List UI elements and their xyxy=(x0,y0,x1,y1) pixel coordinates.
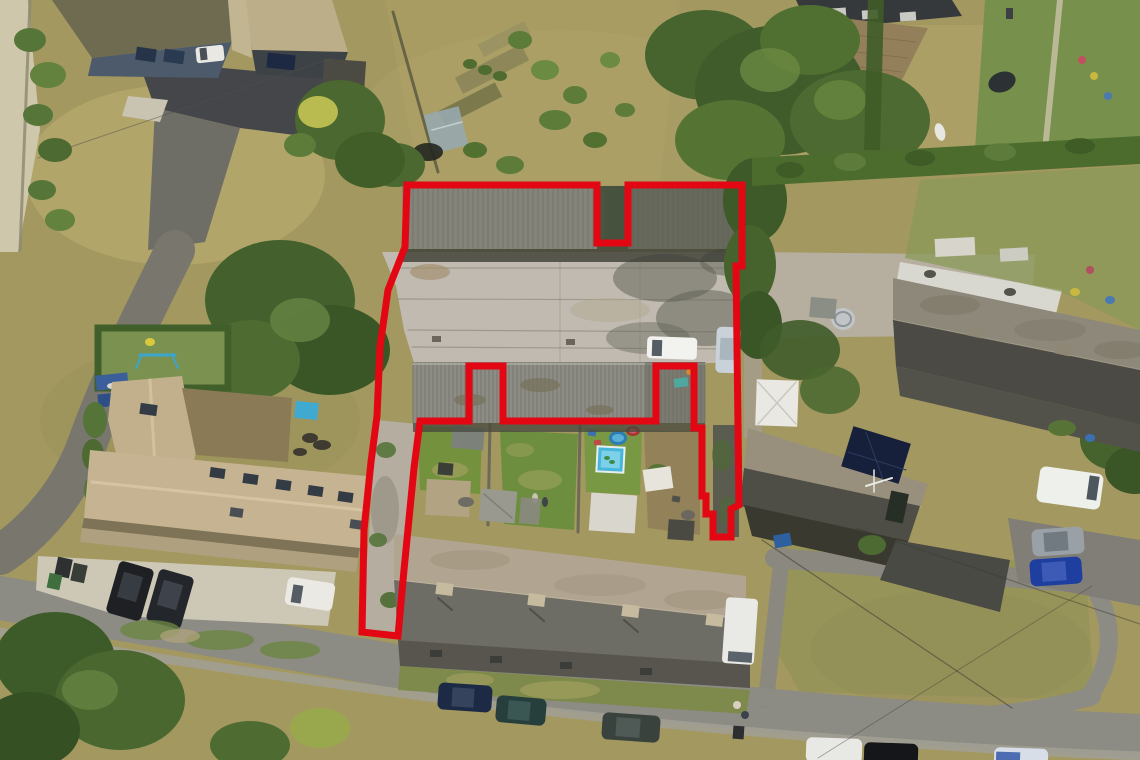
terrace-window-2 xyxy=(490,656,502,663)
yard-tan-stain xyxy=(570,298,650,322)
road-car-navy-glass xyxy=(451,687,474,707)
south-barn-moss-3 xyxy=(586,405,614,415)
allotment-bush-1 xyxy=(508,31,532,49)
topright-flower-3 xyxy=(1104,92,1112,100)
person-2 xyxy=(542,497,548,507)
topleft-house2-solar-panel xyxy=(266,53,295,71)
allotment-bush-7 xyxy=(615,103,635,117)
topright-bench xyxy=(1006,8,1013,19)
topleft-house2-roof-upper xyxy=(246,0,348,52)
pool-print-1 xyxy=(604,456,610,460)
blue-car-right-glass xyxy=(1041,561,1066,582)
planting-strip-3 xyxy=(260,641,320,659)
garden-center-patch-1 xyxy=(518,470,562,490)
garden-center-patch-2 xyxy=(506,443,534,457)
left-building-skylight-3 xyxy=(275,479,291,491)
road-car-green-glass xyxy=(615,717,640,738)
garden-left-item xyxy=(458,497,474,507)
yard-drain-2 xyxy=(566,339,575,345)
south-barn-moss-2 xyxy=(520,378,560,392)
yard-white-car-windshield xyxy=(652,340,663,356)
road-car-black-br xyxy=(864,742,919,760)
strip-bush-2 xyxy=(369,533,387,547)
left-building-skylight-w xyxy=(139,403,157,416)
terrace-roof-mottle-1 xyxy=(430,550,510,570)
tree-highlight-2 xyxy=(814,80,866,120)
right-row-roof-mottle-1 xyxy=(920,295,980,315)
ground-mottle-3 xyxy=(810,590,1090,710)
pedestrian-1 xyxy=(733,701,741,709)
strip-bush-1 xyxy=(376,442,396,458)
topright-flower-1 xyxy=(1078,56,1086,64)
lane-bush-2 xyxy=(30,62,66,88)
allotment-bush-2 xyxy=(531,60,559,80)
bush-yellow-topleft xyxy=(298,96,338,128)
road-car-teal-glass xyxy=(507,700,531,721)
bush-yellow-bottom xyxy=(290,708,350,748)
courtyard-item-3 xyxy=(293,448,307,456)
outbuilding-white xyxy=(589,492,638,533)
white-shed-behind-2 xyxy=(1000,247,1029,261)
allotment-bush-6 xyxy=(583,132,607,148)
lane-bush-3 xyxy=(23,104,53,126)
tree-highlight-1 xyxy=(740,48,800,92)
pool-round-water xyxy=(612,434,624,442)
garden-left-shed2 xyxy=(438,462,454,475)
rt-extension-item-2 xyxy=(1004,288,1016,296)
terrace-chimney-4 xyxy=(705,613,723,627)
allotment-bush-5 xyxy=(539,110,571,130)
lane-bush-5 xyxy=(28,180,56,200)
tarp-white xyxy=(643,466,674,492)
right-yards-blue-item xyxy=(1085,434,1095,442)
terrace-window-4 xyxy=(640,668,652,675)
terrace-window-1 xyxy=(430,650,442,657)
hedge-dapple-4 xyxy=(984,143,1016,161)
garden-right2-item-2 xyxy=(681,510,695,520)
tree-topleft-2 xyxy=(335,132,405,188)
hedge-blob-solar xyxy=(858,535,886,555)
rt-extension-item-1 xyxy=(924,270,936,278)
bed-crop-2 xyxy=(478,65,492,75)
pool-print-2 xyxy=(609,460,615,464)
left-building-skylight-6 xyxy=(229,507,243,518)
garden-toy-yellow xyxy=(145,338,155,346)
tree-bottomleft-highlight xyxy=(62,670,118,710)
right-yards-bush xyxy=(1048,420,1076,436)
left-building-skylight-1 xyxy=(209,467,225,479)
north-barn-shadow xyxy=(403,249,740,262)
divider-fence-2 xyxy=(578,426,580,532)
bed-crop-3 xyxy=(493,71,507,81)
topleft-house-skylight-1 xyxy=(135,47,157,63)
yard-dirt-stain xyxy=(410,264,450,280)
terrace-roof-mottle-3 xyxy=(664,590,736,610)
paddling-pool-water xyxy=(601,451,621,469)
planting-strip-tan xyxy=(160,629,200,643)
street-bin xyxy=(733,726,745,740)
white-van-windshield xyxy=(728,651,753,663)
white-shed-behind-1 xyxy=(935,237,976,257)
bed-crop-1 xyxy=(463,59,477,69)
aerial-photo xyxy=(0,0,1140,760)
lane-bush-1 xyxy=(14,28,46,52)
left-building-skylight-2 xyxy=(242,473,258,485)
playset-red xyxy=(594,440,601,446)
garden-dot-2 xyxy=(1086,266,1094,274)
allotment-bush-9 xyxy=(496,156,524,174)
yard-drain-1 xyxy=(432,336,441,342)
hedge-dapple-3 xyxy=(905,150,935,166)
hedge-dapple-5 xyxy=(1065,138,1095,154)
terrace-chimney-2 xyxy=(527,593,545,607)
left-building-skylight-5 xyxy=(337,491,353,503)
topleft-house-skylight-2 xyxy=(163,49,185,65)
garden-dot-1 xyxy=(1070,288,1080,296)
aerial-photo-canvas xyxy=(0,0,1140,760)
bush-topleft xyxy=(284,133,316,157)
garden-dot-3 xyxy=(1105,296,1115,304)
hedge-col-1 xyxy=(83,402,107,438)
shed-neighbor xyxy=(809,297,837,319)
pedestrian-2 xyxy=(741,711,749,719)
hedge-dapple-2 xyxy=(834,153,866,171)
gray-car-right-glass xyxy=(1043,531,1068,552)
terrace-window-3 xyxy=(560,662,572,669)
right-row-roof-mottle-2 xyxy=(1014,319,1086,341)
left-building-courtyard xyxy=(182,388,292,462)
topright-flower-2 xyxy=(1090,72,1098,80)
left-building-skylight-4 xyxy=(307,485,323,497)
lane-bush-6 xyxy=(45,209,75,231)
allotment-bush-8 xyxy=(463,142,487,158)
road-car-blue-hood xyxy=(996,752,1020,760)
alley-veg-1 xyxy=(712,439,732,471)
hedge-dapple-1 xyxy=(776,162,804,178)
tree-gazebo-area-2 xyxy=(800,366,860,414)
terrace-roof-mottle-2 xyxy=(554,574,646,596)
allotment-bush-3 xyxy=(563,86,587,104)
topright-house-dormer-3 xyxy=(900,11,917,21)
topleft-parked-white-car xyxy=(195,45,225,64)
tree-midleft-highlight xyxy=(270,298,330,342)
shed-dark-right xyxy=(667,519,694,541)
courtyard-item-2 xyxy=(313,440,331,450)
terrace-chimney-3 xyxy=(621,604,639,618)
topleft-white-car-windshield xyxy=(199,48,207,61)
verge-patch-1 xyxy=(520,681,600,699)
courtyard-pool xyxy=(294,401,319,420)
terrace-chimney-1 xyxy=(435,582,453,596)
shed-small xyxy=(519,497,541,525)
lane-bush-4 xyxy=(38,138,72,162)
allotment-bush-4 xyxy=(600,52,620,68)
